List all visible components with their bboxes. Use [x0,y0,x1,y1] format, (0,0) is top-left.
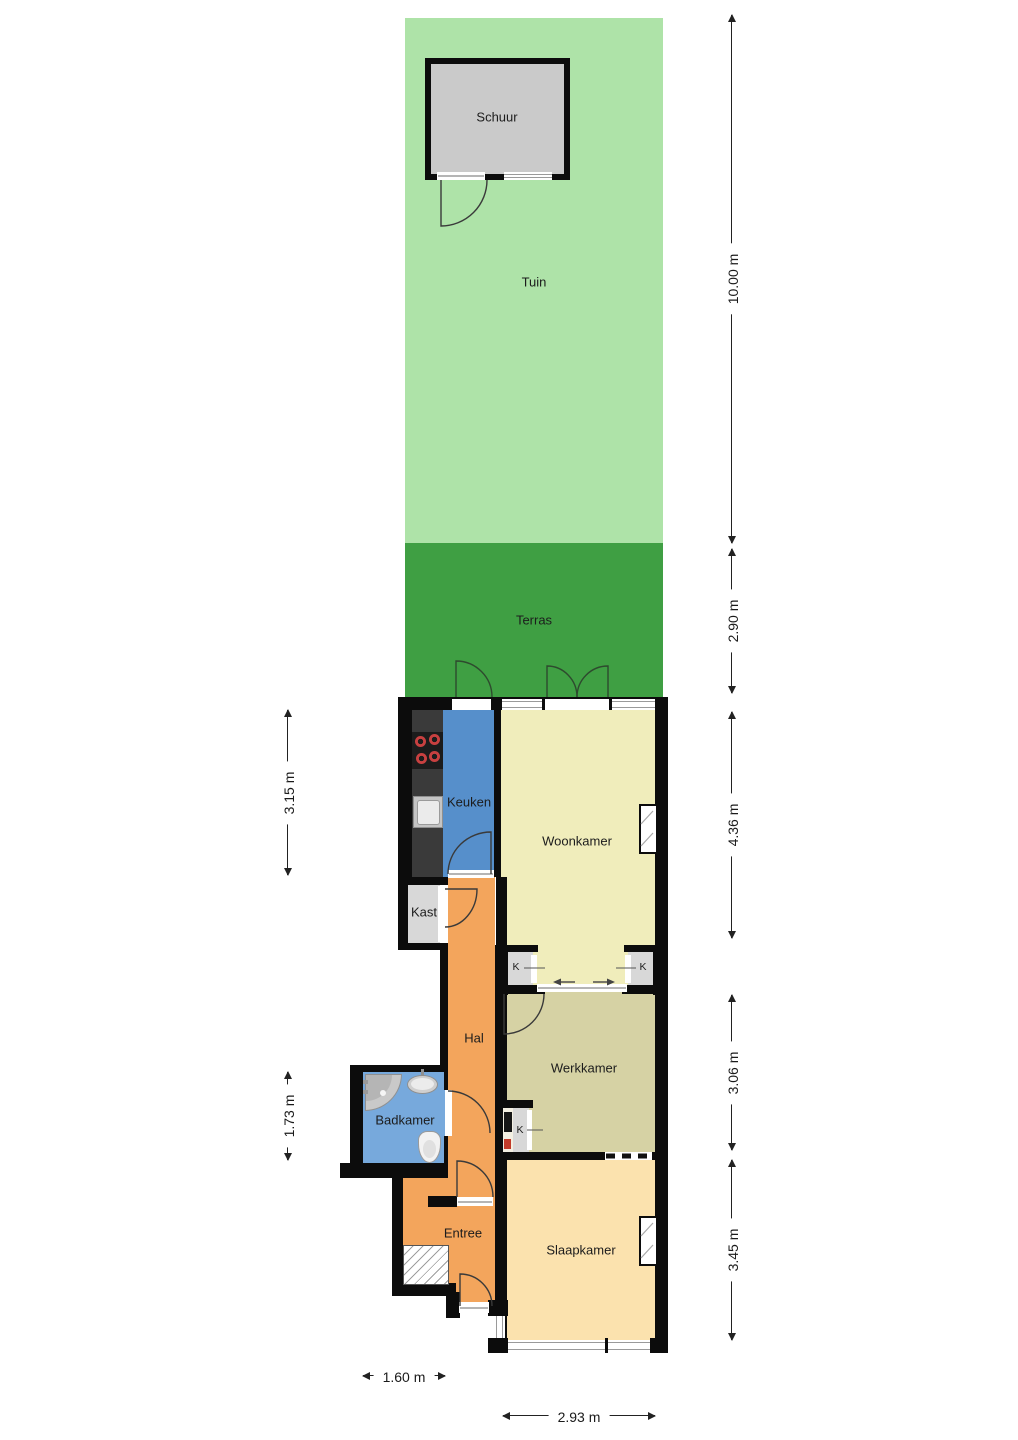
door-arc-icon [457,1161,493,1197]
room-label-hal: Hal [464,1031,484,1046]
dimension-label: 2.90 m [725,590,741,653]
door-arc-icon [448,1091,490,1133]
door-arc-icon [441,180,487,226]
dimension-label: 10.00 m [725,244,741,315]
dimension-label: 1.73 m [281,1085,297,1148]
room-label-woonkamer: Woonkamer [542,834,612,849]
room-label-tuin: Tuin [522,275,547,290]
dimension-kitchen-depth: 3.15 m [287,710,288,875]
floorplan-canvas: Schuur Tuin Terras Keuken Woonkamer Kast… [0,0,1018,1440]
dimension-bedroom-depth: 3.45 m [731,1160,732,1340]
dimension-garden-depth: 10.00 m [731,15,732,543]
door-arc-icon [504,994,544,1034]
dimension-label: 3.06 m [725,1041,741,1104]
door-arc-icon [448,832,491,874]
door-arc-icon [445,889,477,927]
dimension-bedroom-width: 2.93 m [503,1415,655,1416]
shaft-hatch-lines [641,811,653,846]
closet-k3-label: K [516,1124,523,1136]
sliding-door-arrow-right-tip [607,979,615,986]
room-label-keuken: Keuken [447,795,491,810]
door-arc-icon [547,666,577,697]
closet-k1-label: K [512,961,519,973]
dimension-label: 1.60 m [374,1369,435,1385]
room-label-badkamer: Badkamer [375,1113,434,1128]
room-label-entree: Entree [444,1226,482,1241]
room-label-schuur: Schuur [476,110,517,125]
dimension-label: 3.15 m [281,761,297,824]
dimension-label: 4.36 m [725,794,741,857]
dimension-label: 2.93 m [549,1409,610,1425]
dimension-bathroom-depth: 1.73 m [287,1072,288,1160]
shaft-hatch-lines [641,1223,653,1258]
room-label-kast: Kast [411,905,437,920]
dimension-living-room-depth: 4.36 m [731,712,732,938]
room-label-slaapkamer: Slaapkamer [546,1243,615,1258]
closet-k2-label: K [639,961,646,973]
dimension-terrace-depth: 2.90 m [731,549,732,693]
room-label-werkkamer: Werkkamer [551,1061,617,1076]
dimension-label: 3.45 m [725,1219,741,1282]
linework-layer [0,0,1018,1440]
door-arc-icon [456,661,492,697]
sliding-door-arrow-left-tip [553,979,561,986]
door-arc-icon [460,1274,492,1306]
dimension-study-depth: 3.06 m [731,995,732,1150]
dimension-entry-width: 1.60 m [363,1375,445,1376]
door-arc-icon [577,666,608,697]
room-label-terras: Terras [516,613,552,628]
